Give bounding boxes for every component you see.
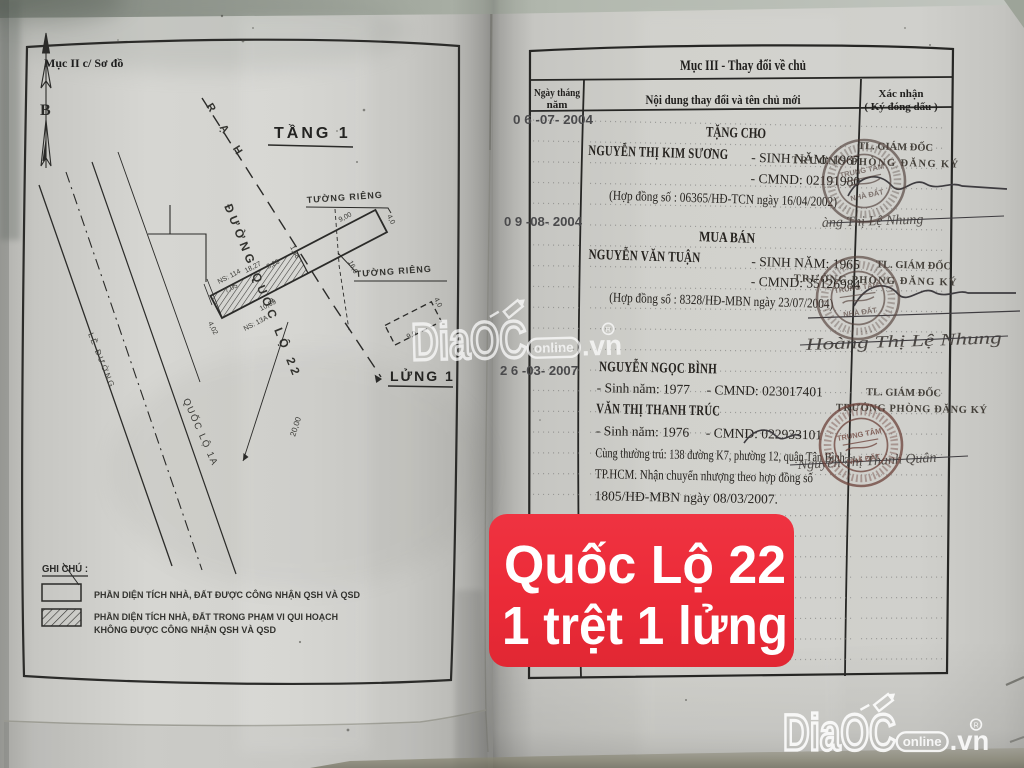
svg-text:Mục II c/ Sơ đồ: Mục II c/ Sơ đồ (44, 56, 123, 70)
svg-text:TẦNG 1: TẦNG 1 (274, 123, 351, 142)
svg-text:PHẦN DIỆN TÍCH NHÀ, ĐẤT TRONG: PHẦN DIỆN TÍCH NHÀ, ĐẤT TRONG PHẠM VI QU… (94, 611, 338, 622)
svg-text:.vn: .vn (950, 725, 990, 756)
svg-text:- Sinh năm: 1976: - Sinh năm: 1976 (596, 423, 690, 440)
svg-text:Quốc Lộ 22: Quốc Lộ 22 (504, 535, 786, 595)
svg-text:1 trệt 1 lửng: 1 trệt 1 lửng (502, 596, 788, 656)
svg-text:- CMND: 023017401: - CMND: 023017401 (706, 382, 823, 399)
svg-text:Nội dung thay đổi và tên chủ m: Nội dung thay đổi và tên chủ mới (646, 93, 801, 107)
svg-text:0 9 -08- 2004: 0 9 -08- 2004 (504, 214, 583, 229)
svg-text:PHẦN DIỆN TÍCH NHÀ, ĐẤT ĐƯỢC: PHẦN DIỆN TÍCH NHÀ, ĐẤT ĐƯỢC CÔNG NHẬN Q… (94, 589, 360, 600)
svg-text:( Ký đóng dấu ): ( Ký đóng dấu ) (864, 101, 938, 113)
svg-text:Ngày tháng: Ngày tháng (534, 87, 580, 99)
svg-text:- Sinh năm: 1977: - Sinh năm: 1977 (597, 380, 691, 397)
svg-text:TẶNG CHO: TẶNG CHO (706, 123, 766, 142)
svg-text:R: R (974, 722, 979, 729)
svg-text:R: R (606, 327, 611, 334)
svg-text:Xác nhận: Xác nhận (879, 88, 924, 100)
svg-text:online: online (903, 734, 942, 749)
svg-text:Mục III - Thay đổi về chủ: Mục III - Thay đổi về chủ (680, 58, 806, 74)
svg-text:online: online (534, 340, 575, 356)
svg-text:TL. GIÁM ĐỐC: TL. GIÁM ĐỐC (866, 385, 941, 399)
svg-text:MUA BÁN: MUA BÁN (699, 228, 756, 247)
svg-text:năm: năm (547, 99, 568, 111)
svg-text:B: B (40, 102, 51, 119)
svg-text:GHI CHÚ :: GHI CHÚ : (42, 562, 88, 575)
svg-text:- CMND: 022933101: - CMND: 022933101 (706, 425, 823, 442)
svg-text:DiaOC: DiaOC (411, 311, 527, 372)
svg-text:VĂN THỊ THANH TRÚC: VĂN THỊ THANH TRÚC (596, 400, 720, 419)
svg-text:0 6 -07- 2004: 0 6 -07- 2004 (513, 112, 594, 127)
svg-text:KHÔNG ĐƯỢC CÔNG NHẬN QSH VÀ QS: KHÔNG ĐƯỢC CÔNG NHẬN QSH VÀ QSD (94, 624, 276, 635)
svg-text:.vn: .vn (581, 329, 622, 361)
